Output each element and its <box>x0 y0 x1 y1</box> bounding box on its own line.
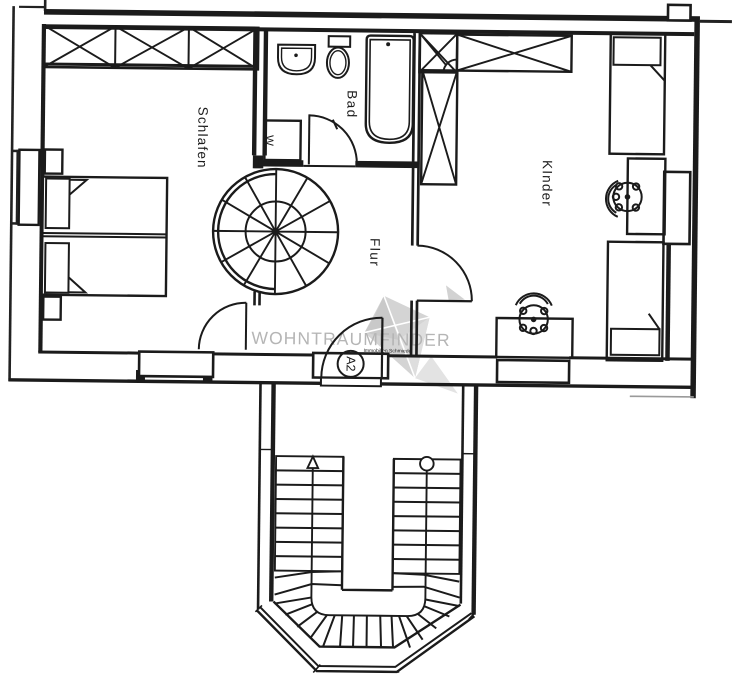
svg-text:Schlafen: Schlafen <box>195 107 211 169</box>
svg-text:Flur: Flur <box>367 238 382 267</box>
svg-text:Bad: Bad <box>344 90 359 119</box>
svg-text:W: W <box>263 135 275 146</box>
svg-text:A2: A2 <box>344 356 358 371</box>
svg-text:WOHNTRAUMFINDER: WOHNTRAUMFINDER <box>251 328 450 350</box>
svg-text:KInder: KInder <box>539 160 555 207</box>
